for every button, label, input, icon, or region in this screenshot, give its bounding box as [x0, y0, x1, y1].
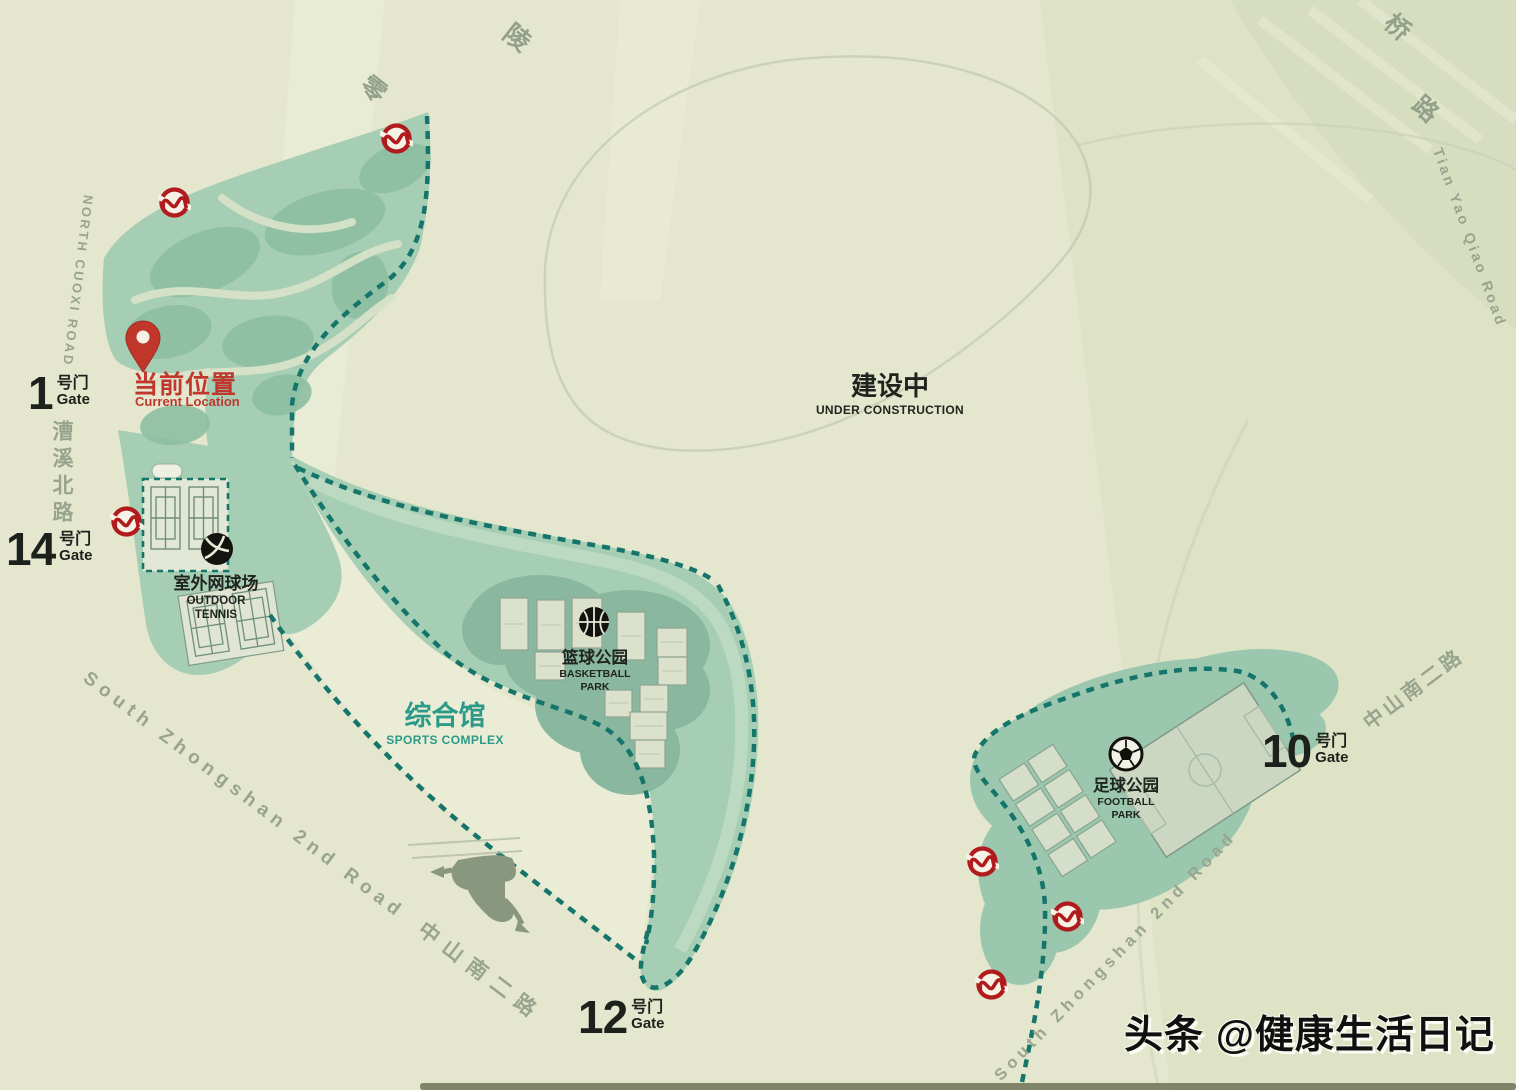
watermark: 头条 @健康生活日记 [1124, 1004, 1495, 1060]
gate-suffix-zh: 号门 [631, 999, 664, 1016]
football-park-label: 足球公园 FOOTBALL PARK [1080, 772, 1172, 822]
outdoor-tennis-en1: OUTDOOR [187, 594, 246, 608]
park-map: NORTH CUOXI ROAD 1 号门 Gate 漕溪北路 14 号门 Ga… [0, 0, 1516, 1090]
gate-1-label: 1 号门 Gate [28, 372, 90, 414]
gate-suffix-en: Gate [57, 392, 90, 408]
gate-number: 12 [578, 996, 627, 1038]
gate-suffix-zh: 号门 [59, 531, 92, 548]
basketball-park-label: 篮球公园 BASKETBALL PARK [551, 644, 639, 694]
current-location-label-en: Current Location [135, 394, 240, 409]
gate-number: 1 [28, 372, 53, 414]
gate-suffix-zh: 号门 [57, 375, 90, 392]
under-construction-label: 建设中 UNDER CONSTRUCTION [808, 366, 972, 418]
under-construction-zh: 建设中 [851, 366, 929, 403]
gate-suffix-en: Gate [1315, 750, 1348, 766]
outdoor-tennis-label: 室外网球场 OUTDOOR TENNIS [160, 569, 272, 623]
under-construction-en: UNDER CONSTRUCTION [816, 403, 964, 418]
outdoor-tennis-zh: 室外网球场 [174, 569, 259, 594]
photo-bottom-edge [420, 1083, 1516, 1090]
road-label-caoxi-north: 漕溪北路 [46, 420, 76, 528]
basketball-icon [579, 607, 609, 637]
sports-complex-en: SPORTS COMPLEX [386, 733, 504, 748]
football-icon [1110, 738, 1142, 770]
football-park-zh: 足球公园 [1093, 772, 1159, 796]
sports-complex-label: 综合馆 SPORTS COMPLEX [383, 694, 507, 748]
basketball-park-en2: PARK [581, 681, 610, 694]
tennis-ball-icon [201, 533, 233, 565]
gate-number: 14 [6, 528, 55, 570]
basketball-park-zh: 篮球公园 [562, 644, 628, 668]
gate-12-label: 12 号门 Gate [578, 996, 665, 1038]
basketball-park-en1: BASKETBALL [559, 668, 630, 681]
gate-10-label: 10 号门 Gate [1262, 730, 1349, 772]
football-park-en1: FOOTBALL [1097, 796, 1154, 809]
gate-suffix-en: Gate [631, 1016, 664, 1032]
outdoor-tennis-en2: TENNIS [195, 608, 237, 622]
sports-complex-zh: 综合馆 [405, 694, 486, 733]
gate-suffix-en: Gate [59, 548, 92, 564]
gate-suffix-zh: 号门 [1315, 733, 1348, 750]
gate-number: 10 [1262, 730, 1311, 772]
football-park-en2: PARK [1112, 809, 1141, 822]
gate-14-label: 14 号门 Gate [6, 528, 93, 570]
map-artwork [0, 0, 1516, 1090]
